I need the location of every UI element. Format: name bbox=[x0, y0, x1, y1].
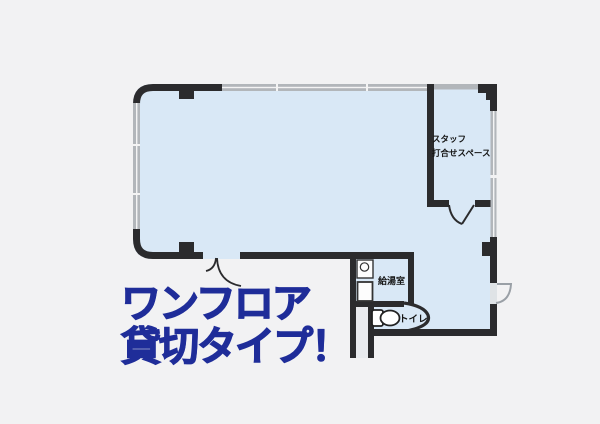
window-top bbox=[222, 84, 428, 91]
kitchenette-label: 給湯室 bbox=[378, 274, 405, 287]
floor-plan: スタッフ 打合せスペース 給湯室 トイレ ワンフロア 貸切タイプ！ bbox=[0, 0, 600, 424]
staff-room-label-line2: 打合せスペース bbox=[432, 147, 490, 161]
headline: ワンフロア 貸切タイプ！ bbox=[121, 283, 349, 369]
toilet-icon bbox=[372, 310, 400, 326]
staff-room-label-line1: スタッフ bbox=[432, 133, 490, 147]
headline-line2: 貸切タイプ！ bbox=[121, 326, 349, 369]
staff-room-label: スタッフ 打合せスペース bbox=[432, 133, 490, 161]
headline-line1: ワンフロア bbox=[121, 283, 349, 326]
window-left bbox=[133, 103, 140, 229]
exit-door-arc bbox=[496, 284, 511, 303]
toilet-label: トイレ bbox=[399, 311, 428, 325]
